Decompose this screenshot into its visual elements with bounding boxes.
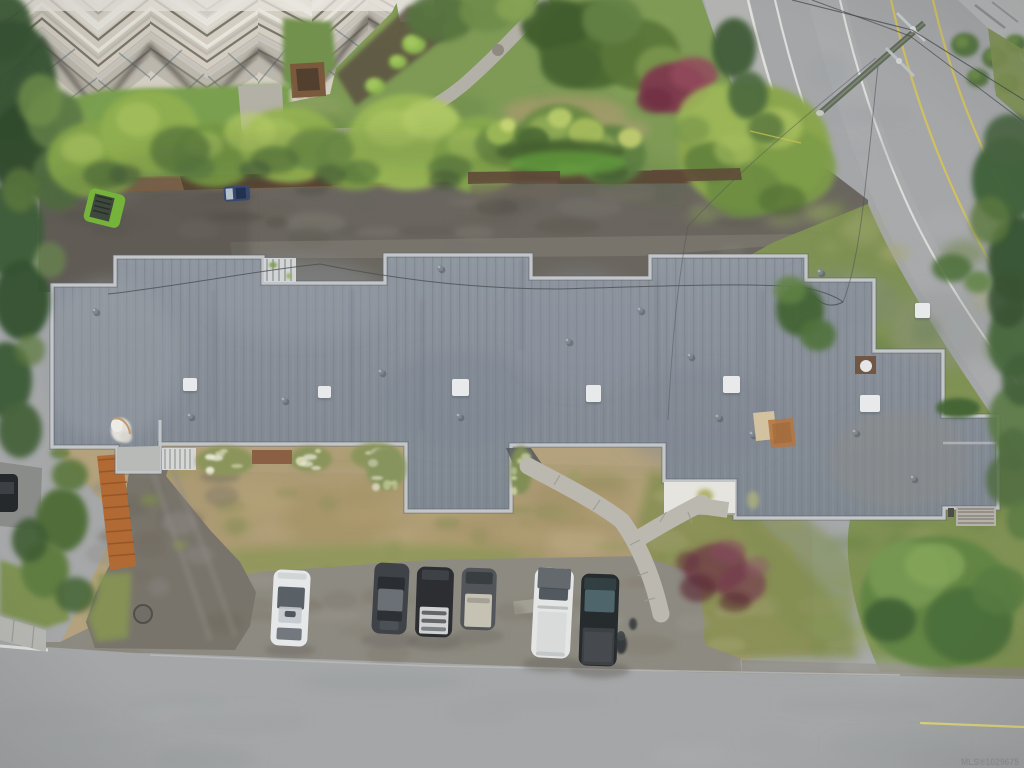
svg-text:MLS®1029675: MLS®1029675 xyxy=(961,757,1020,768)
